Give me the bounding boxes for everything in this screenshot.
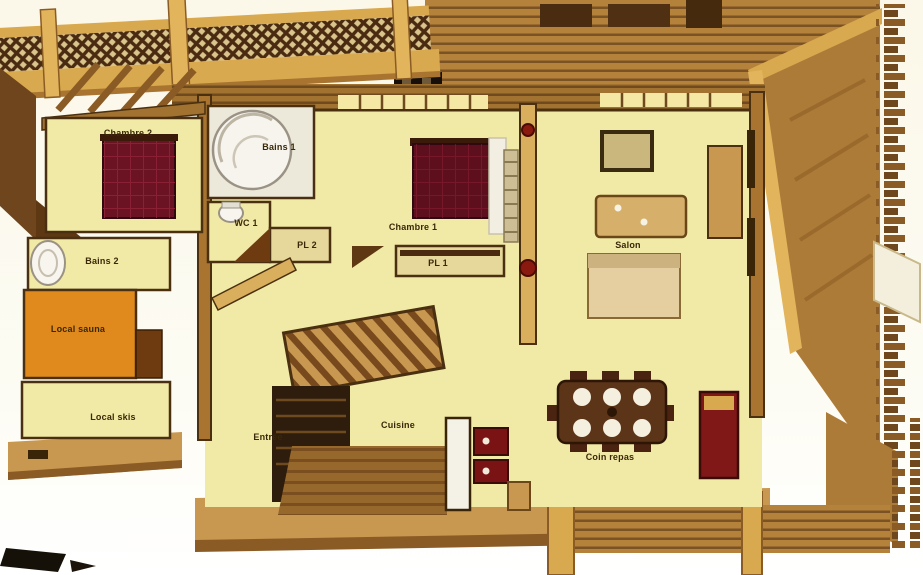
room-label: Cuisine [381, 420, 415, 430]
log-ends-edge [876, 4, 906, 474]
room-bains-2: Bains 2 [28, 238, 170, 290]
room-label: Salon [615, 240, 641, 250]
room-bains-1: Bains 1 [208, 106, 314, 198]
room-label: Coin repas [586, 452, 635, 462]
room-label: Local skis [90, 412, 136, 422]
wardrobe-rail [400, 250, 500, 256]
sauna-door-icon [136, 330, 162, 378]
room-label: WC 1 [234, 218, 257, 228]
room-local-skis: Local skis [22, 382, 170, 438]
oven-icon [474, 460, 508, 483]
deck-cutaway [278, 446, 447, 515]
stove-top-icon [474, 428, 508, 455]
room-label: Chambre 2 [104, 128, 152, 138]
coffee-table-icon [596, 196, 686, 237]
room-chambre-2: Chambre 2 [46, 118, 202, 232]
counter-icon [508, 482, 530, 510]
room-label: PL 1 [428, 258, 448, 268]
room-label: Chambre 1 [389, 222, 437, 232]
kitchen-island-icon [446, 418, 470, 510]
room-label: Bains 1 [262, 142, 295, 152]
fireplace-icon [700, 392, 738, 478]
ladder-icon [504, 150, 518, 242]
floor-plan-svg: Chambre 2 Bains 2 Local sauna Local skis… [0, 0, 923, 575]
rug-icon [602, 132, 652, 170]
room-label: Bains 2 [85, 256, 118, 266]
room-label: PL 2 [297, 240, 317, 250]
room-label: Entrée [253, 432, 282, 442]
floor-plan-image: Chambre 2 Bains 2 Local sauna Local skis… [0, 0, 923, 575]
room-label: Local sauna [51, 324, 106, 334]
cabinet-icon [708, 146, 742, 238]
bathtub-icon [31, 241, 65, 285]
dining-set-icon [547, 371, 674, 452]
stove-icon [520, 260, 536, 276]
stove-icon [522, 124, 534, 136]
deck-post [548, 505, 574, 575]
